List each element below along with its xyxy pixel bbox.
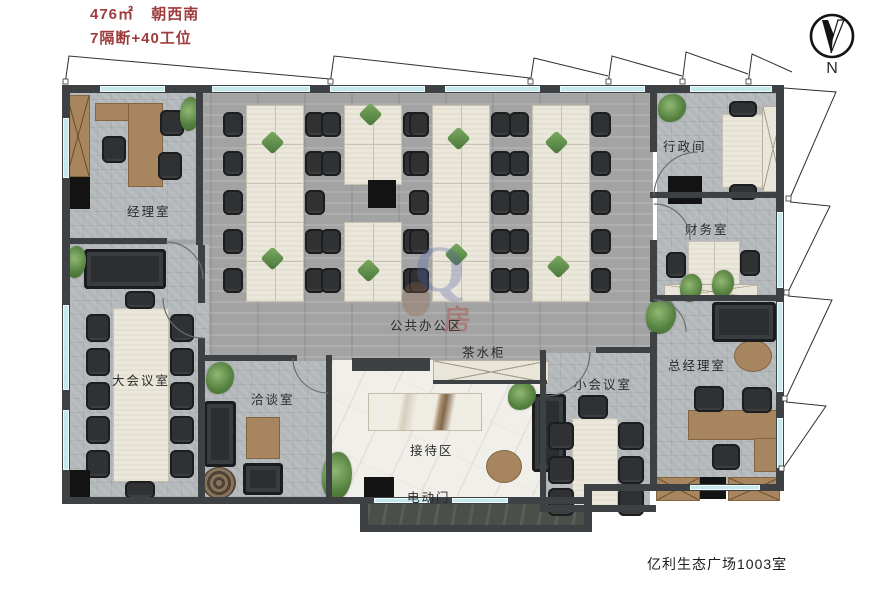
office-chair [509,268,529,293]
office-chair [491,268,511,293]
office-chair [321,229,341,254]
room-label-small-meeting: 小会议室 [574,374,632,393]
window [63,118,69,178]
orientation-value: 朝西南 [151,6,199,23]
room-label-finance-room: 财务室 [685,219,729,238]
office-chair [223,190,243,215]
wall [360,525,592,532]
office-chair [409,151,429,176]
office-chair [591,268,611,293]
cabinet [668,176,702,204]
office-chair [321,151,341,176]
office-chair [125,291,155,309]
office-chair [491,229,511,254]
gm-desk [688,410,782,440]
workstation-desk [432,261,490,302]
wall [650,332,657,491]
window [445,86,540,92]
office-chair [409,268,429,293]
office-chair [170,450,194,478]
office-chair [729,101,757,117]
office-chair [409,229,429,254]
workstation-desk [432,144,490,185]
room-label-large-meeting: 大会议室 [112,370,170,389]
rug [202,467,236,499]
office-chair [491,190,511,215]
office-chair [742,387,772,413]
door-equipment [364,477,394,499]
office-chair [712,444,740,470]
window [212,86,310,92]
wall [650,85,657,152]
wall [62,238,167,244]
layout-summary: 7隔断+40工位 [90,27,192,48]
reception-desk [368,393,482,431]
address-label: 亿利生态广场1003室 [647,554,787,574]
armchair [243,463,283,495]
room-label-electric-door: 电动门 [407,487,451,506]
office-chair [170,348,194,376]
office-chair [578,395,608,419]
sofa [712,302,776,342]
office-chair [170,382,194,410]
room-label-manager-office: 经理室 [127,201,171,220]
area-value: 476㎡ [90,6,134,23]
window [777,418,783,468]
workstation-desk [532,144,590,185]
room-label-negotiation: 洽谈室 [251,389,295,408]
office-chair [591,112,611,137]
office-chair [305,190,325,215]
floor-plan-canvas: 476㎡ 朝西南 7隔断+40工位 经理室 行政间 财务室 公共办公区 茶水柜 … [0,0,885,600]
floor-plan [0,0,885,600]
office-chair [170,314,194,342]
office-chair [170,416,194,444]
wall [433,380,547,384]
office-chair [491,151,511,176]
office-chair [223,151,243,176]
wall [326,355,332,497]
window [690,485,760,490]
wall [540,505,656,512]
window [777,302,783,392]
conference-table [113,308,169,482]
office-chair [509,151,529,176]
office-chair [548,456,574,484]
workstation-desk [344,222,402,263]
office-chair [223,268,243,293]
window [452,498,508,503]
office-chair [666,252,686,278]
wall [198,245,205,303]
office-chair [591,190,611,215]
room-label-admin-room: 行政间 [663,136,707,155]
office-chair [86,314,110,342]
wall [203,355,297,361]
office-chair [321,112,341,137]
office-chair [321,268,341,293]
wall [596,347,652,353]
window [330,86,425,92]
office-chair [618,456,644,484]
wall [198,338,205,497]
wall [650,240,657,302]
wall [62,497,368,504]
office-chair [509,190,529,215]
office-chair [491,112,511,137]
workstation-desk [432,183,490,224]
office-chair [223,229,243,254]
sofa [84,249,166,289]
office-chair [591,151,611,176]
office-chair [618,422,644,450]
office-chair [86,348,110,376]
desk [722,114,766,188]
workstation-desk [246,183,304,224]
window [63,305,69,390]
office-chair [409,112,429,137]
round-table [734,340,772,372]
sofa [204,401,236,467]
office-chair [740,250,760,276]
office-chair [409,190,429,215]
wall [650,192,783,198]
round-table [486,450,522,483]
listing-summary: 476㎡ 朝西南 [90,3,199,24]
window [560,86,645,92]
window [690,86,772,92]
room-label-open-office: 公共办公区 [390,315,463,334]
workstation-desk [344,144,402,185]
window [100,86,165,92]
office-chair [509,229,529,254]
wall [650,295,783,301]
wall [196,85,203,245]
office-chair [86,382,110,410]
office-chair [158,152,182,180]
wall [352,358,430,371]
workstation-desk [532,183,590,224]
cabinet [368,180,396,208]
office-chair [102,136,126,163]
room-label-tea-cabinet: 茶水柜 [462,342,506,361]
office-chair [694,386,724,412]
room-label-gm-office: 总经理室 [668,355,726,374]
office-chair [591,229,611,254]
office-chair [223,112,243,137]
window [777,212,783,288]
office-chair [548,422,574,450]
window [63,410,69,470]
room-label-reception: 接待区 [410,440,454,459]
office-chair [86,416,110,444]
coffee-table [246,417,280,459]
wall [540,350,546,508]
office-chair [509,112,529,137]
